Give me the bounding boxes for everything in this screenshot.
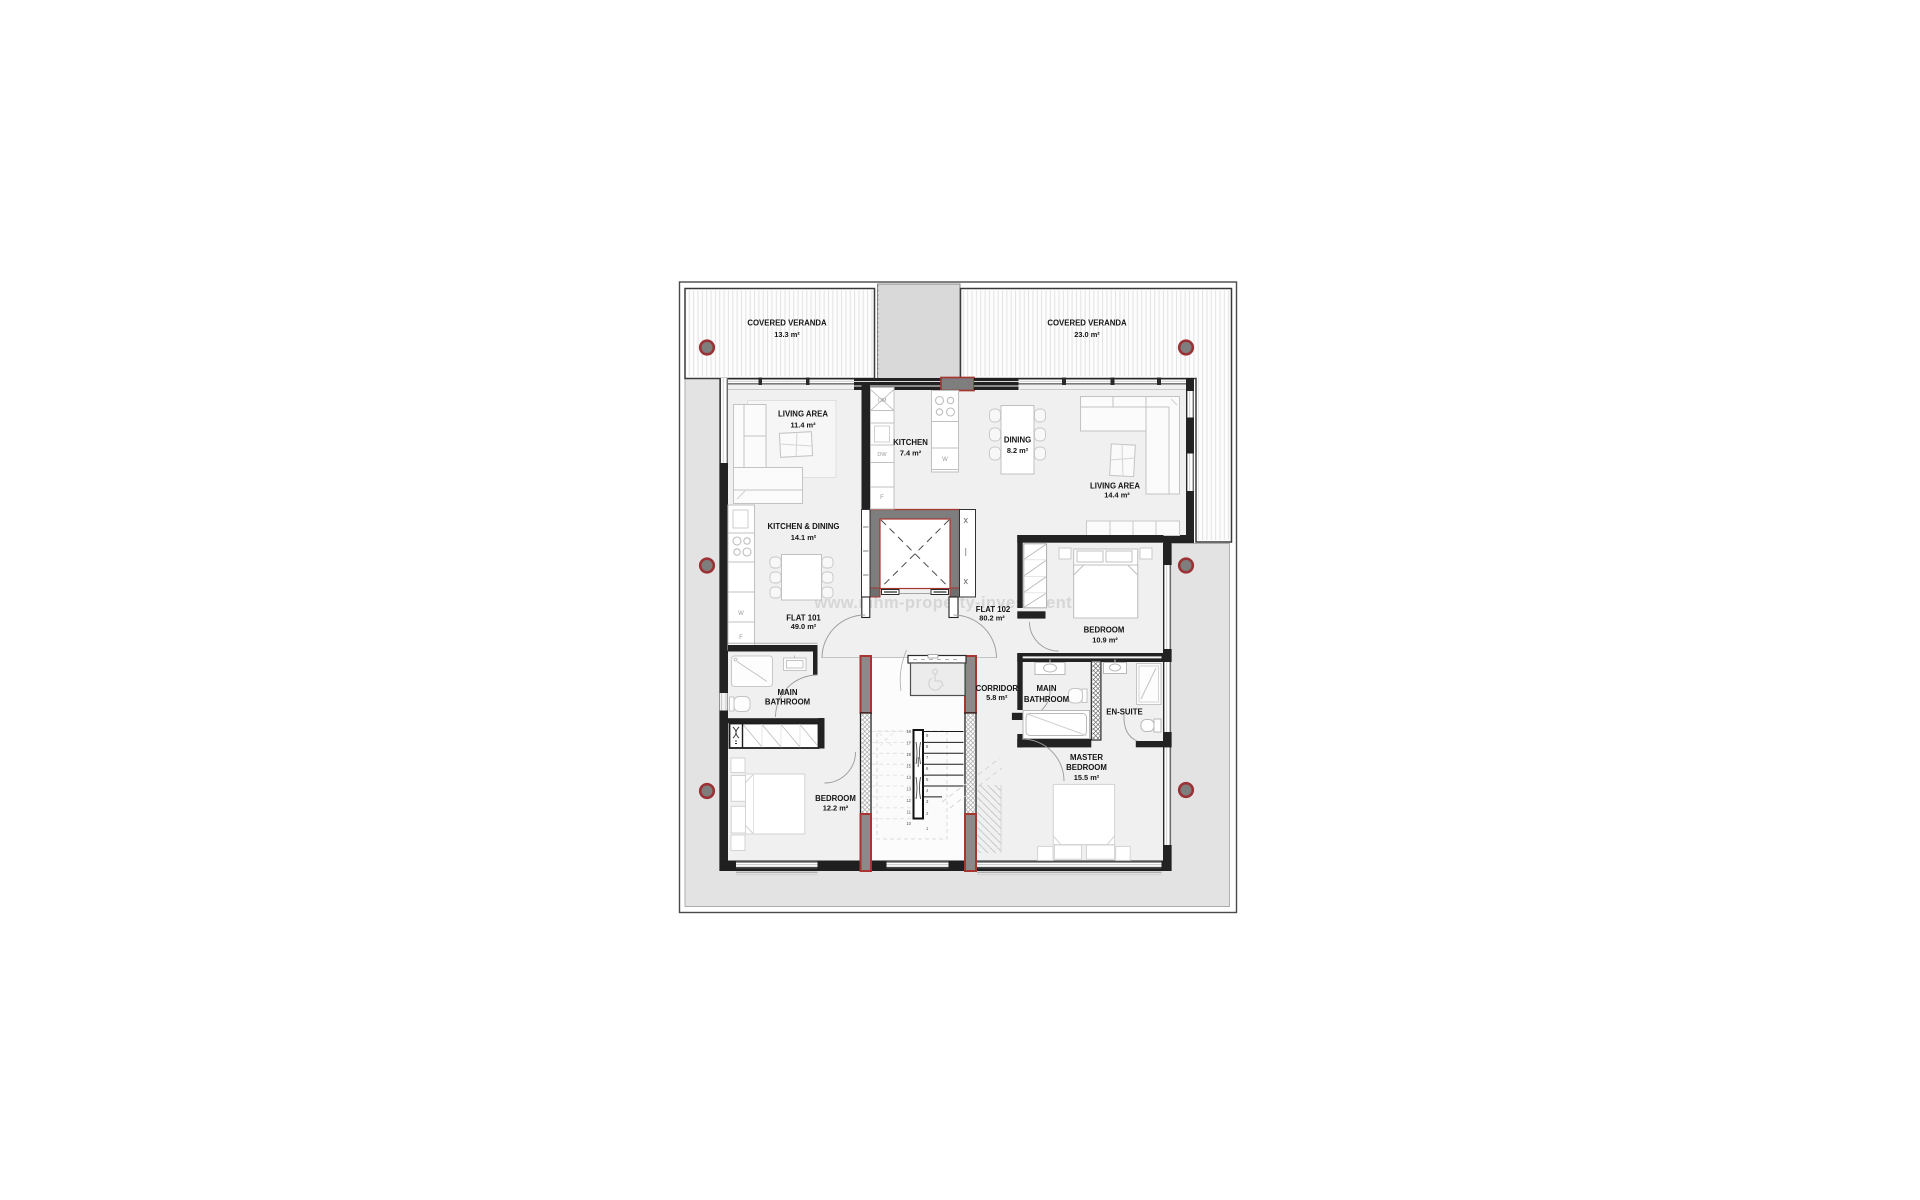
svg-text:BATHROOM: BATHROOM xyxy=(1024,695,1069,704)
svg-text:11: 11 xyxy=(907,810,912,815)
svg-text:17: 17 xyxy=(906,741,911,746)
svg-text:DW: DW xyxy=(877,452,887,458)
svg-text:14.4 m²: 14.4 m² xyxy=(1104,491,1130,500)
svg-text:16: 16 xyxy=(906,752,911,757)
svg-text:5.8 m²: 5.8 m² xyxy=(986,693,1008,702)
svg-text:COVERED VERANDA: COVERED VERANDA xyxy=(747,319,827,328)
svg-text:DINING: DINING xyxy=(1004,436,1031,445)
svg-text:OM: OM xyxy=(878,398,887,404)
svg-text:BATHROOM: BATHROOM xyxy=(765,698,810,707)
svg-text:EN-SUITE: EN-SUITE xyxy=(1106,708,1142,717)
svg-text:LIVING AREA: LIVING AREA xyxy=(1090,482,1140,491)
svg-text:8.2 m²: 8.2 m² xyxy=(1007,446,1029,455)
svg-text:BEDROOM: BEDROOM xyxy=(1066,763,1107,772)
svg-text:F: F xyxy=(880,495,884,501)
svg-text:7.4 m²: 7.4 m² xyxy=(900,449,922,458)
svg-text:MAIN: MAIN xyxy=(1037,684,1057,693)
svg-text:MAIN: MAIN xyxy=(778,688,798,697)
svg-text:COVERED VERANDA: COVERED VERANDA xyxy=(1047,319,1127,328)
svg-text:W: W xyxy=(942,457,948,463)
svg-text:23.0 m²: 23.0 m² xyxy=(1074,330,1100,339)
svg-text:14: 14 xyxy=(906,775,911,780)
svg-text:18: 18 xyxy=(906,729,911,734)
svg-text:13.3 m²: 13.3 m² xyxy=(774,330,800,339)
svg-text:15.5 m²: 15.5 m² xyxy=(1074,773,1100,782)
svg-text:MASTER: MASTER xyxy=(1070,753,1103,762)
svg-text:CORRIDOR: CORRIDOR xyxy=(976,684,1019,693)
svg-text:80.2 m²: 80.2 m² xyxy=(979,614,1005,623)
svg-text:15: 15 xyxy=(906,764,911,769)
svg-text:12: 12 xyxy=(906,798,911,803)
svg-text:F: F xyxy=(739,635,743,641)
svg-text:12.2 m²: 12.2 m² xyxy=(823,804,849,813)
svg-text:KITCHEN & DINING: KITCHEN & DINING xyxy=(768,522,840,531)
svg-text:W: W xyxy=(738,611,744,617)
svg-text:BEDROOM: BEDROOM xyxy=(815,794,856,803)
svg-text:KITCHEN: KITCHEN xyxy=(893,438,928,447)
svg-text:BEDROOM: BEDROOM xyxy=(1084,626,1125,635)
svg-text:14.1 m²: 14.1 m² xyxy=(791,533,817,542)
svg-text:LIVING AREA: LIVING AREA xyxy=(778,410,828,419)
svg-text:10: 10 xyxy=(906,821,911,826)
svg-text:13: 13 xyxy=(906,787,911,792)
svg-text:49.0 m²: 49.0 m² xyxy=(791,622,817,631)
svg-text:10.9 m²: 10.9 m² xyxy=(1092,636,1118,645)
svg-text:11.4 m²: 11.4 m² xyxy=(790,421,816,430)
